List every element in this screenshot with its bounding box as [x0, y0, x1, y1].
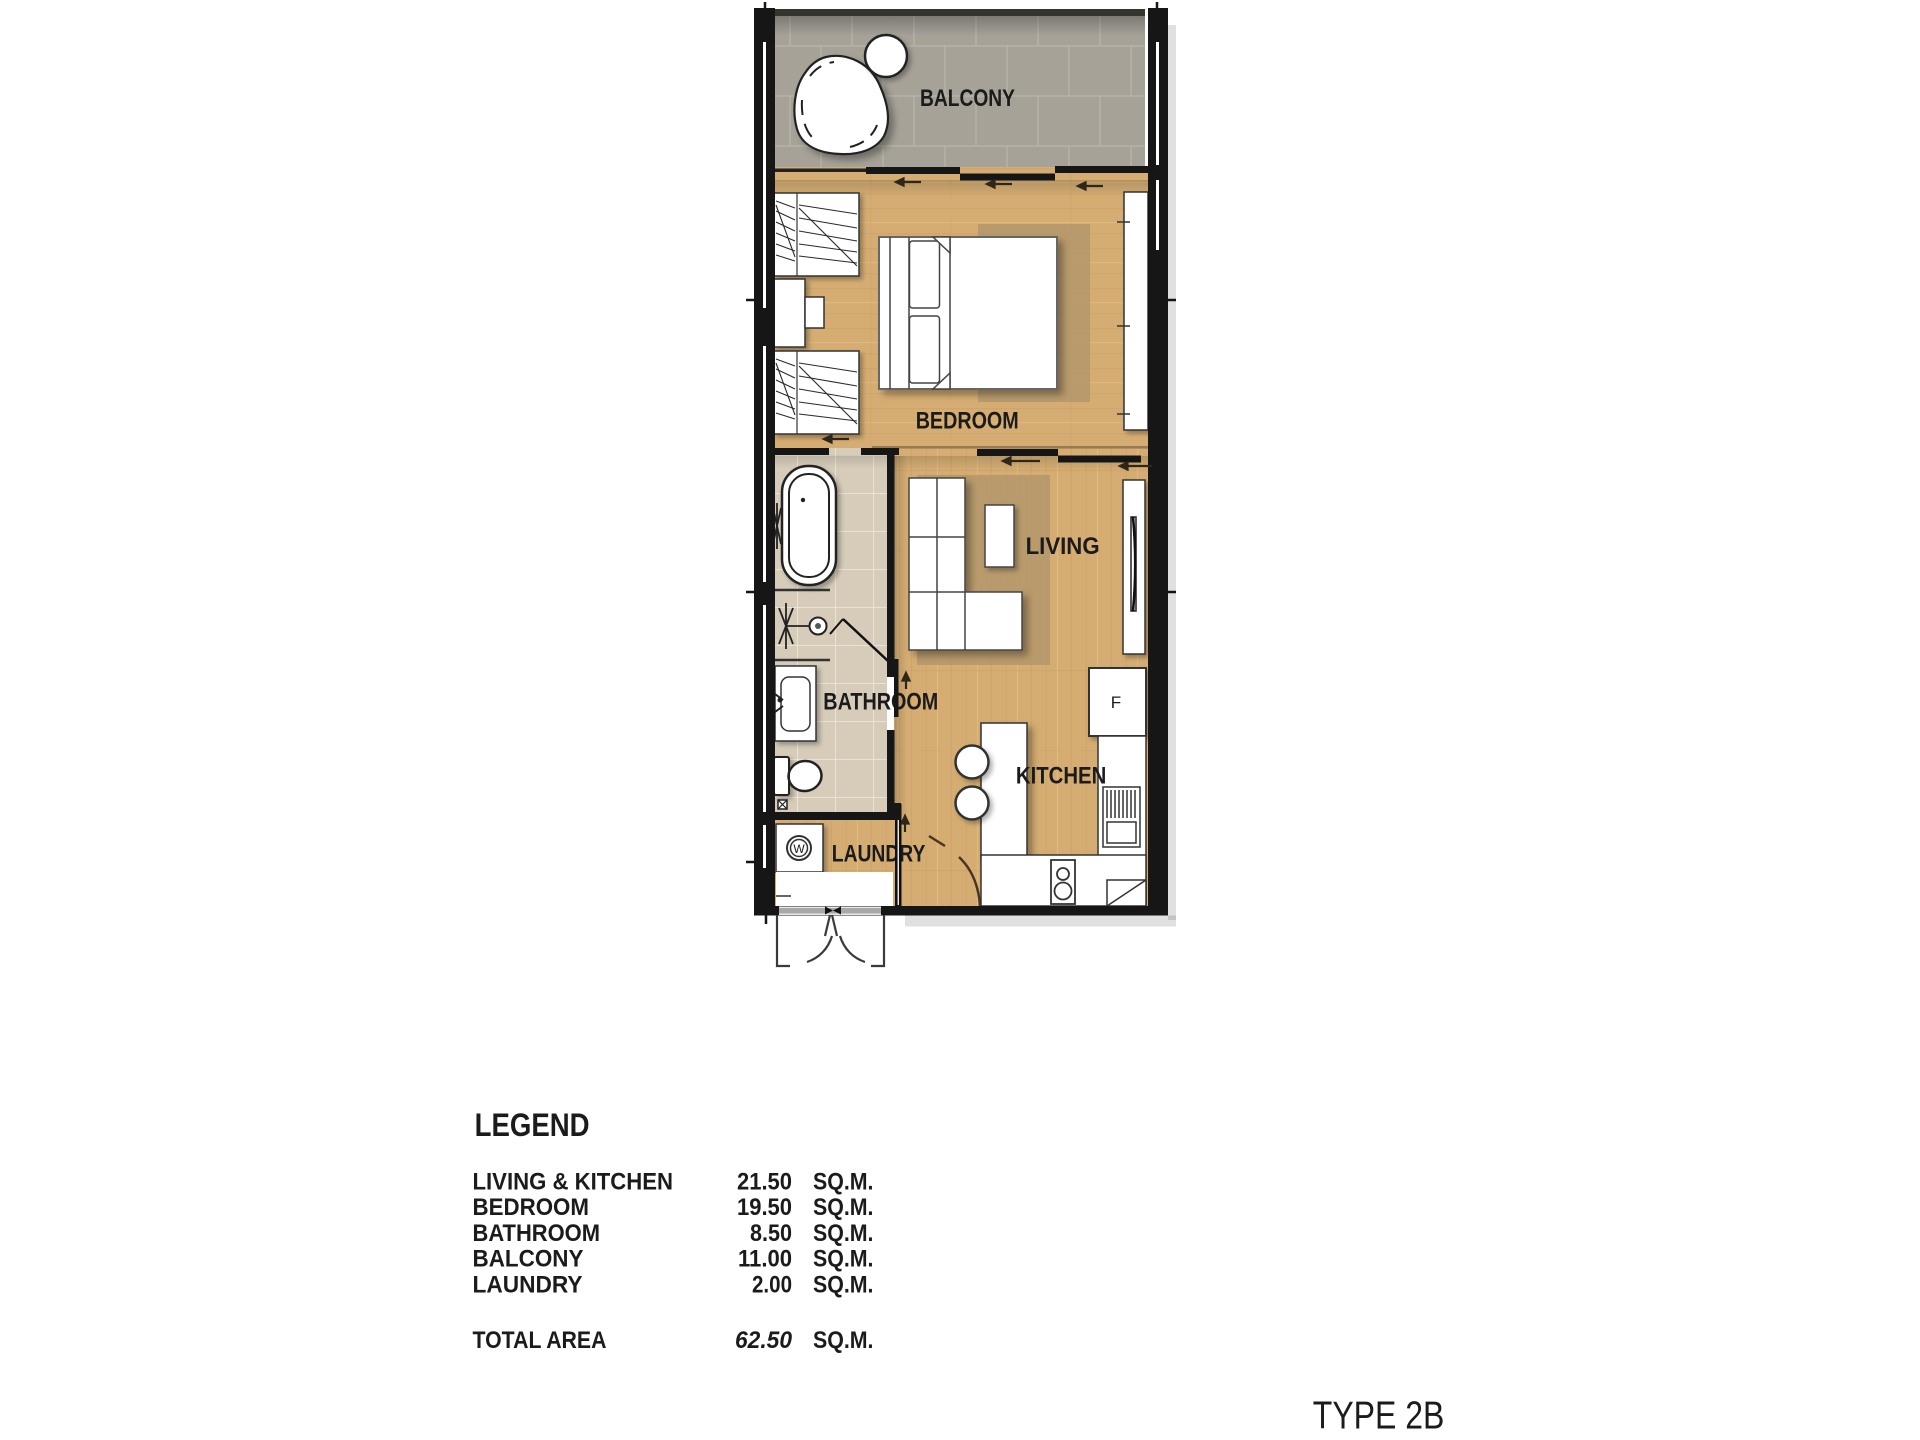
svg-text:BEDROOM: BEDROOM — [916, 408, 1019, 435]
svg-text:11.00: 11.00 — [738, 1246, 792, 1273]
svg-text:8.50: 8.50 — [750, 1220, 792, 1247]
svg-text:F: F — [1111, 693, 1121, 712]
svg-text:BEDROOM: BEDROOM — [473, 1194, 590, 1221]
svg-text:19.50: 19.50 — [737, 1194, 792, 1221]
svg-text:SQ.M.: SQ.M. — [813, 1220, 874, 1247]
svg-text:BATHROOM: BATHROOM — [473, 1220, 601, 1247]
svg-text:BALCONY: BALCONY — [920, 85, 1015, 112]
svg-text:BATHROOM: BATHROOM — [823, 689, 938, 716]
svg-text:KITCHEN: KITCHEN — [1016, 763, 1106, 790]
svg-text:SQ.M.: SQ.M. — [813, 1327, 874, 1354]
svg-text:SQ.M.: SQ.M. — [813, 1194, 874, 1221]
svg-text:2.00: 2.00 — [752, 1271, 792, 1298]
svg-text:62.50: 62.50 — [735, 1327, 793, 1354]
svg-text:BALCONY: BALCONY — [473, 1246, 584, 1273]
svg-text:LEGEND: LEGEND — [475, 1107, 590, 1143]
svg-text:SQ.M.: SQ.M. — [813, 1169, 874, 1196]
svg-text:SQ.M.: SQ.M. — [813, 1246, 874, 1273]
svg-text:W: W — [793, 842, 805, 856]
svg-text:21.50: 21.50 — [737, 1169, 792, 1196]
svg-text:LAUNDRY: LAUNDRY — [832, 841, 926, 868]
svg-text:LIVING & KITCHEN: LIVING & KITCHEN — [473, 1169, 674, 1196]
svg-text:TOTAL AREA: TOTAL AREA — [473, 1327, 607, 1354]
svg-text:LAUNDRY: LAUNDRY — [473, 1271, 583, 1298]
svg-text:SQ.M.: SQ.M. — [813, 1271, 874, 1298]
svg-text:TYPE 2B: TYPE 2B — [1313, 1395, 1445, 1438]
svg-text:LIVING: LIVING — [1026, 533, 1100, 560]
